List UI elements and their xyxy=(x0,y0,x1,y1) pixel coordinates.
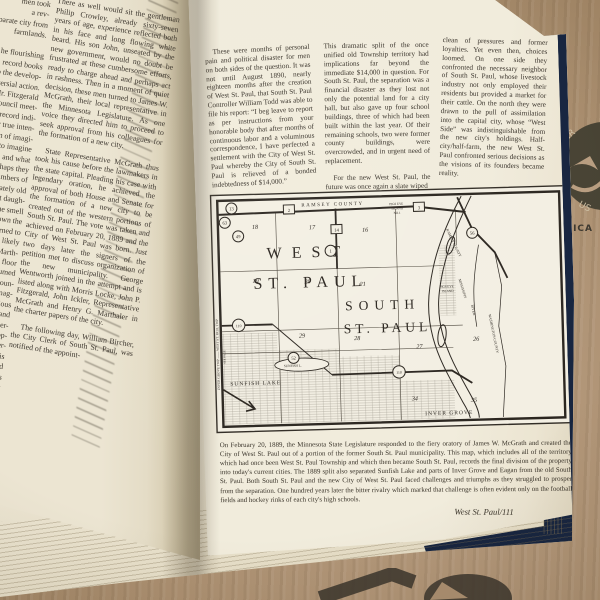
svg-text:110: 110 xyxy=(396,371,402,375)
svg-text:63: 63 xyxy=(222,220,227,225)
column-3-paragraph: clean of pressures and former loyalties.… xyxy=(439,36,548,181)
svg-text:14: 14 xyxy=(334,228,339,233)
svg-text:49: 49 xyxy=(236,234,241,239)
map-label-pigs-eye-2b: ISLAND xyxy=(442,289,454,293)
map-label-west: WEST xyxy=(266,243,350,262)
svg-text:34: 34 xyxy=(411,395,418,402)
svg-text:21: 21 xyxy=(359,281,365,288)
map-label-south-stpaul: ST. PAUL xyxy=(344,319,432,336)
right-page: These were months of personal pain and p… xyxy=(188,0,576,556)
right-page-text-columns: These were months of personal pain and p… xyxy=(206,36,549,205)
map-label-sunfish-small: SUNFISH L. xyxy=(284,364,302,369)
left-page: men took a rev- parate city from farmlan… xyxy=(0,0,200,560)
svg-text:110: 110 xyxy=(236,324,242,328)
svg-text:18: 18 xyxy=(252,224,259,231)
svg-text:56: 56 xyxy=(470,231,475,236)
photo-of-open-book: PER US ERICA men took a rev- parate city… xyxy=(0,0,600,600)
svg-text:20: 20 xyxy=(304,278,311,285)
map-caption: On February 20, 1889, the Minnesota Stat… xyxy=(220,439,572,505)
column-1-paragraph: These were months of personal pain and p… xyxy=(204,43,317,190)
map-label-see-page: SEE PAGE xyxy=(222,350,226,364)
svg-text:19: 19 xyxy=(252,278,258,285)
svg-text:29: 29 xyxy=(299,333,305,340)
svg-text:27: 27 xyxy=(416,343,423,350)
page-footer: West St. Paul/111 xyxy=(454,507,574,518)
right-page-column-1: These were months of personal pain and p… xyxy=(204,43,318,206)
right-page-column-2: This dramatic split of the once unified … xyxy=(324,41,431,200)
svg-text:13: 13 xyxy=(229,206,234,211)
map-label-pigs-eye-1c: NO.1 xyxy=(394,211,402,215)
svg-text:28: 28 xyxy=(354,335,361,342)
plat-map-drawing: WEST ST. PAUL SOUTH ST. PAUL RAMSEY COUN… xyxy=(209,184,574,434)
svg-text:16: 16 xyxy=(362,227,369,234)
right-page-column-3: clean of pressures and former loyalties.… xyxy=(438,36,547,197)
svg-text:17: 17 xyxy=(309,224,316,231)
column-2-paragraph-1: This dramatic split of the once unified … xyxy=(324,41,431,166)
cardboard-print-mark-icon xyxy=(310,568,520,600)
map-label-south: SOUTH xyxy=(345,296,420,313)
open-book: men took a rev- parate city from farmlan… xyxy=(0,0,600,600)
svg-text:35: 35 xyxy=(470,397,477,404)
svg-text:26: 26 xyxy=(473,336,480,343)
plat-map: WEST ST. PAUL SOUTH ST. PAUL RAMSEY COUN… xyxy=(209,184,574,434)
svg-text:52: 52 xyxy=(291,356,296,361)
